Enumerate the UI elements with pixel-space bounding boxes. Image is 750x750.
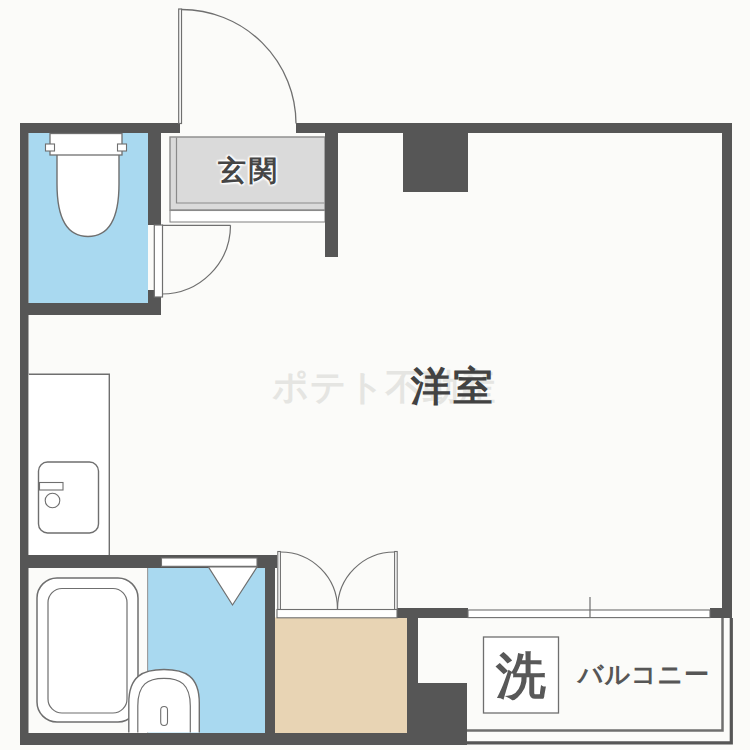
wall-window-right bbox=[710, 608, 732, 618]
toilet-tank-notch-left bbox=[46, 144, 55, 151]
bathtub-icon bbox=[37, 578, 138, 722]
closet-doors bbox=[277, 552, 397, 618]
kitchen-counter bbox=[29, 374, 110, 555]
wall-bottom bbox=[20, 733, 467, 745]
toilet-tank-notch-right bbox=[118, 144, 127, 151]
wall-right bbox=[722, 123, 732, 618]
wall-pillar bbox=[403, 133, 468, 192]
wall-toilet-bottom bbox=[20, 303, 161, 315]
balcony-window bbox=[468, 597, 710, 618]
washbasin-handle bbox=[161, 707, 168, 726]
closet-door-arc-left bbox=[281, 552, 338, 609]
wall-top-left bbox=[20, 123, 180, 133]
wall-closet-right-column bbox=[407, 617, 418, 745]
floor-plan: ポテト不動産 洋室 玄関 洗 バルコニー bbox=[0, 0, 750, 750]
room-label-western-room: 洋室 bbox=[411, 366, 495, 406]
wall-toilet-right-upper bbox=[148, 133, 161, 225]
wall-closet-top-right bbox=[397, 608, 418, 618]
closet-sill bbox=[277, 610, 397, 618]
wall-washroom-right bbox=[265, 556, 275, 733]
closet-door-leaf-left bbox=[278, 552, 281, 610]
closet-floor bbox=[275, 618, 407, 734]
closet-door-leaf-right bbox=[395, 552, 398, 610]
toilet-bowl bbox=[57, 155, 119, 237]
entrance-door bbox=[179, 9, 296, 124]
sink-faucet bbox=[40, 483, 64, 491]
wall-balcony-stub bbox=[418, 683, 467, 733]
entrance-door-leaf bbox=[179, 9, 182, 124]
sink-drain bbox=[45, 493, 60, 508]
entrance-step bbox=[170, 211, 325, 223]
washroom-door-track bbox=[162, 558, 258, 566]
hall-door bbox=[154, 225, 230, 297]
entrance-door-swing-arc bbox=[182, 10, 297, 124]
wall-top-right bbox=[296, 123, 732, 133]
hall-door-leaf bbox=[154, 225, 162, 297]
wall-entrance-right bbox=[325, 133, 338, 257]
closet-door-arc-right bbox=[338, 552, 395, 609]
washing-machine-label: 洗 bbox=[496, 651, 546, 701]
wall-left bbox=[20, 123, 29, 745]
room-label-entrance: 玄関 bbox=[218, 157, 280, 185]
toilet-tank bbox=[50, 134, 122, 156]
room-label-balcony: バルコニー bbox=[578, 662, 710, 687]
hall-door-swing-arc bbox=[162, 225, 231, 294]
sliding-window bbox=[468, 610, 710, 618]
wall-window-left bbox=[418, 608, 468, 618]
